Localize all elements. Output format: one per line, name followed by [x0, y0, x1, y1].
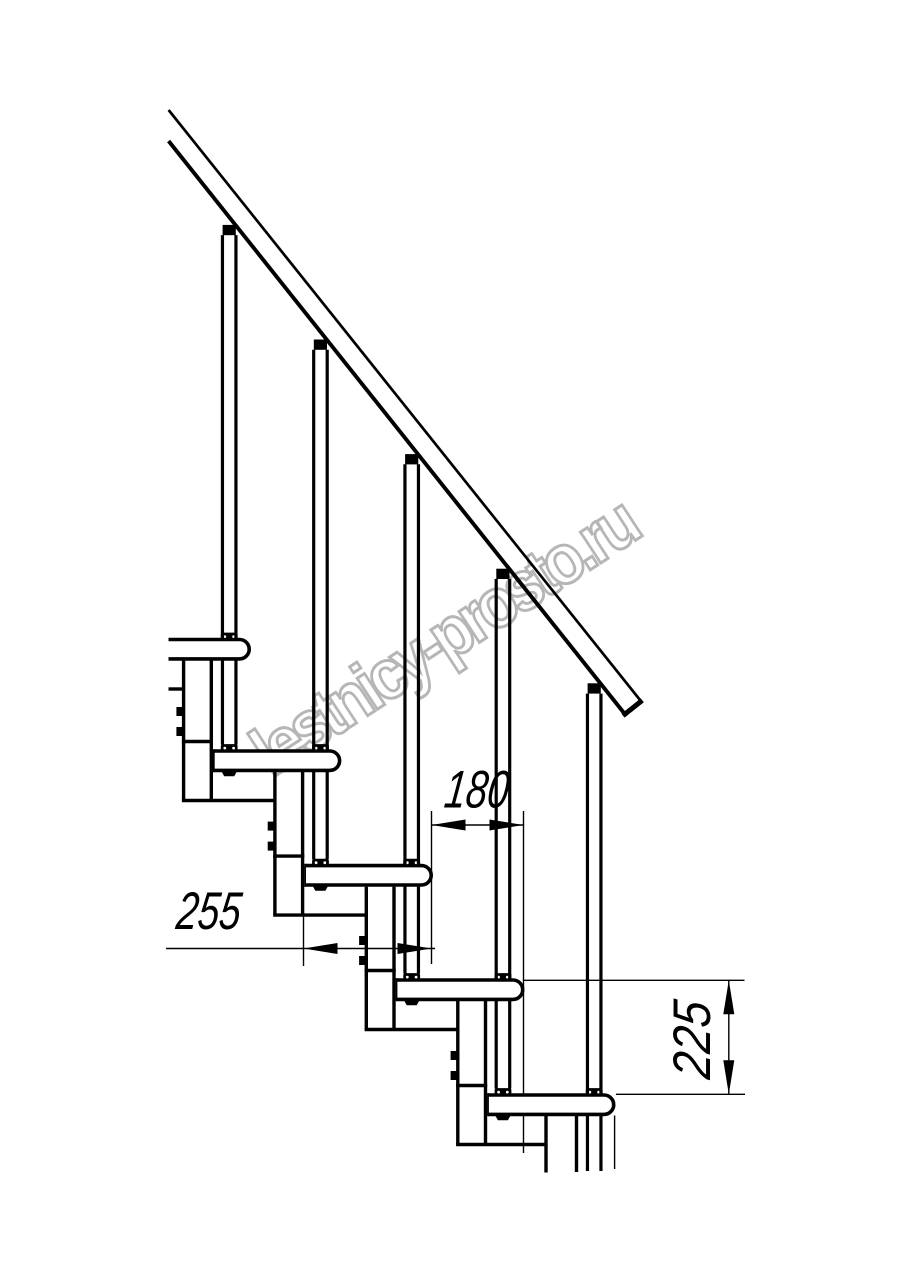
- svg-text:180: 180: [442, 761, 514, 820]
- svg-text:225: 225: [663, 997, 722, 1082]
- svg-text:255: 255: [173, 882, 245, 941]
